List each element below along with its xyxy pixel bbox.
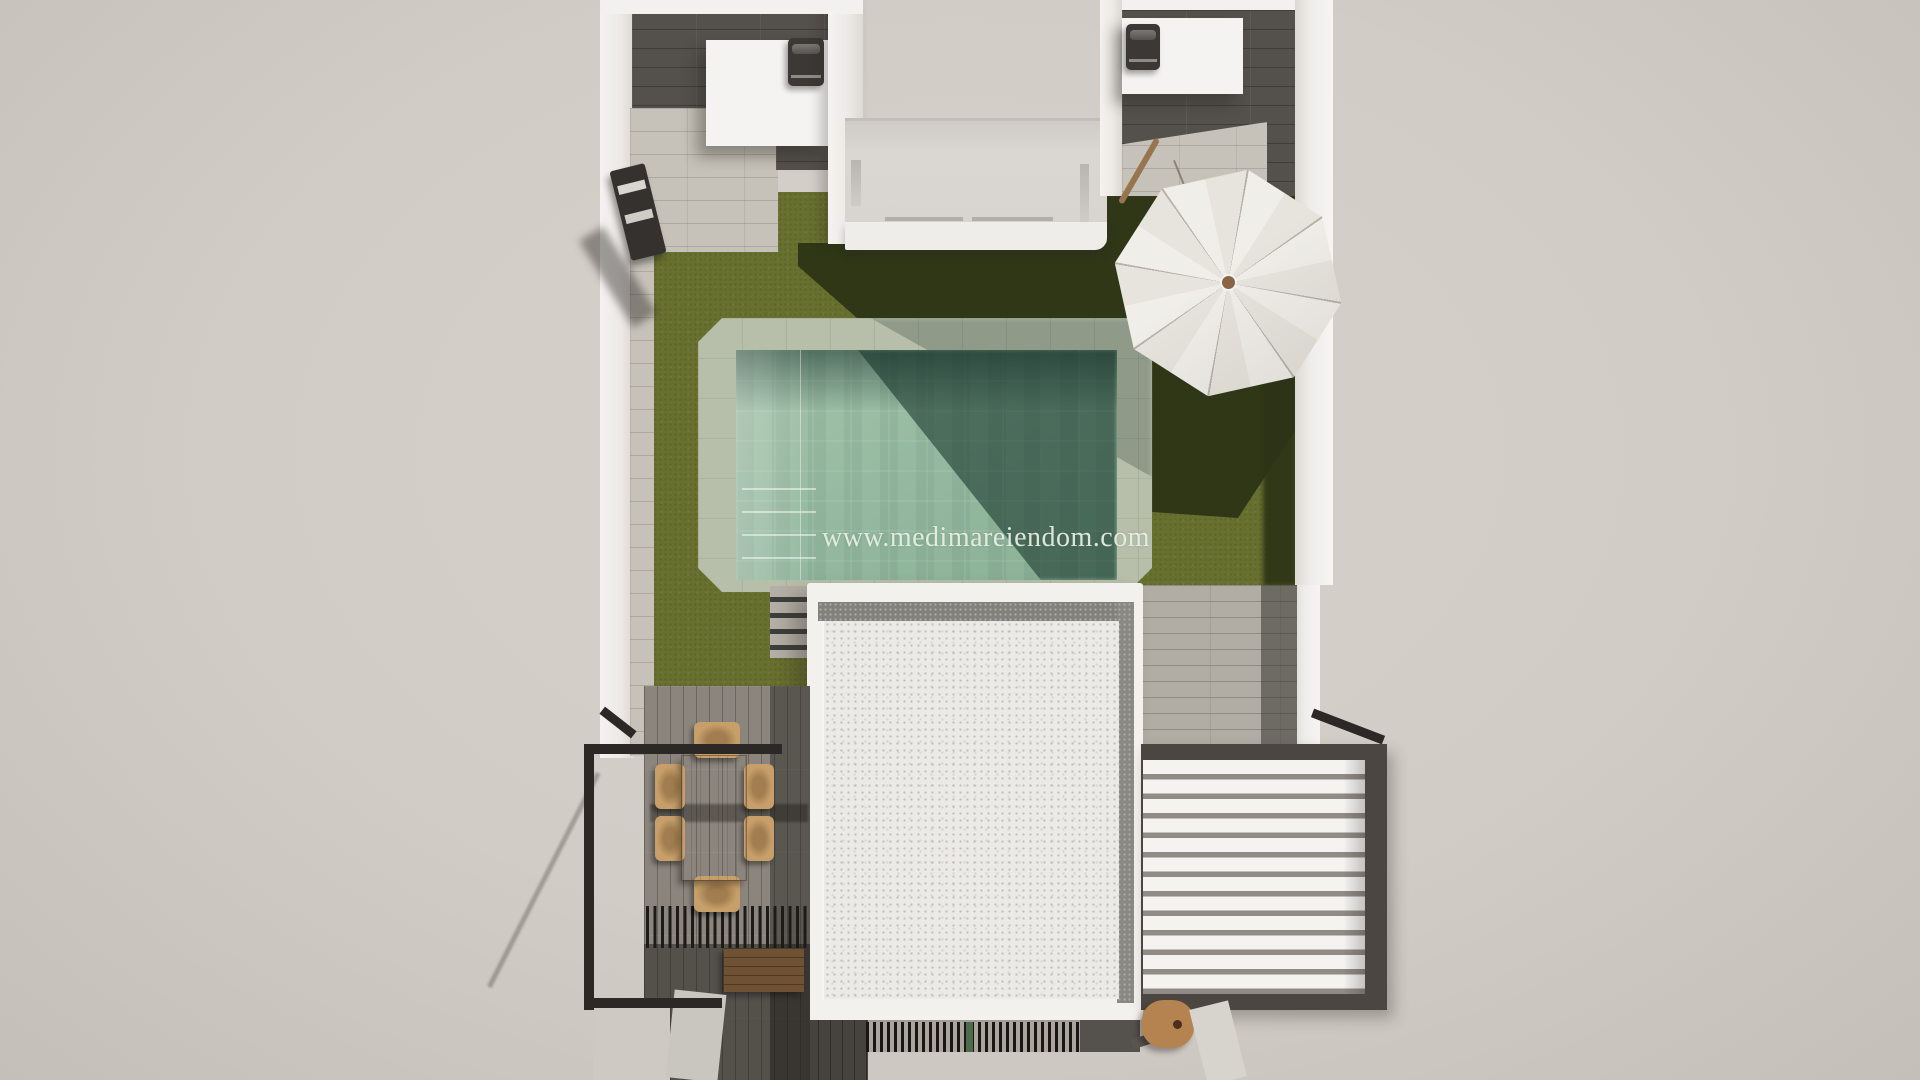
villa-top-view-render: www.medimareiendom.com	[0, 0, 1920, 1080]
bbq-grill-icon-left	[788, 38, 824, 86]
dining-table	[682, 756, 746, 880]
wood-stool	[1142, 1000, 1194, 1048]
white-gravel-field	[822, 621, 1119, 999]
wood-bench	[724, 948, 804, 992]
dining-chair	[694, 876, 740, 912]
terrace-groove-right	[972, 217, 1053, 221]
left-perimeter-wall	[600, 0, 634, 758]
dining-chair	[655, 816, 685, 861]
dining-chair	[744, 764, 774, 809]
right-wing-inner-wall	[1100, 0, 1122, 196]
railing-bottom-bar	[584, 998, 722, 1008]
shaded-band-right	[1080, 1020, 1140, 1052]
railing-corner-right	[1311, 709, 1385, 745]
top-wall-band-left	[600, 0, 863, 14]
bbq-grill-icon-right	[1126, 24, 1160, 70]
slatted-pergola-roof	[1143, 760, 1365, 994]
dining-chair	[655, 764, 685, 809]
railing-top-bar	[584, 744, 782, 754]
dining-chair	[744, 816, 774, 861]
terrace-wall-shadow-right	[1080, 164, 1089, 222]
terrace-wall-shadow-left	[851, 160, 861, 206]
pool-interior-steps	[742, 488, 816, 580]
shaded-deck-bottom	[806, 1020, 868, 1080]
vent-grate	[866, 1022, 1080, 1052]
lower-wall-wedge-right	[1189, 1000, 1247, 1080]
umbrella-center-knob	[1222, 276, 1235, 289]
roof-parapet-stripe-top	[818, 602, 1134, 621]
roof-parapet-stripe-right	[1117, 602, 1134, 1003]
vent-grate-plant	[966, 1022, 973, 1052]
terrace-groove-left	[885, 217, 963, 221]
right-perimeter-wall-lower	[1293, 585, 1320, 748]
black-slat-shade	[646, 906, 808, 948]
right-patio-shadow	[1261, 585, 1297, 746]
upper-terrace-parapet	[845, 222, 1107, 250]
railing-left-bar	[584, 744, 594, 1010]
upper-terrace-floor	[845, 118, 1107, 227]
ground-gap	[594, 1008, 670, 1080]
watermark-url: www.medimareiendom.com	[822, 522, 1150, 554]
